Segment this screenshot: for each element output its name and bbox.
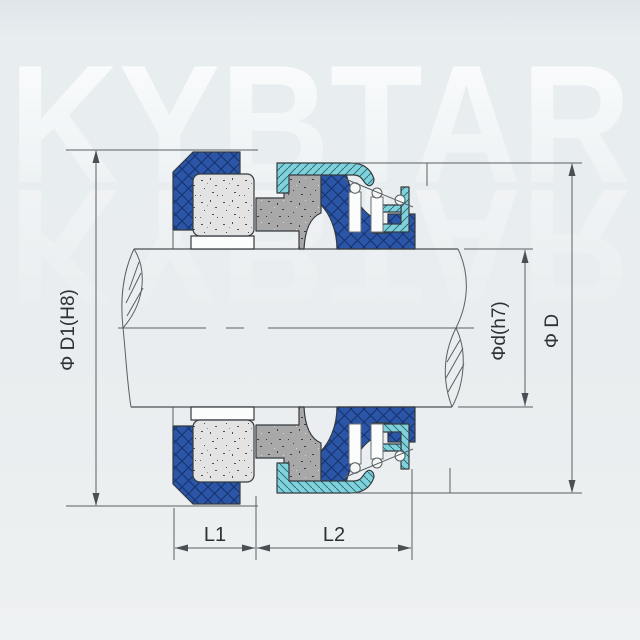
stationary-seat-ring xyxy=(193,174,254,236)
seal-assembly-bottom xyxy=(173,407,415,504)
seal-technical-drawing: KYBTAR KYBTAR xyxy=(0,0,640,640)
label-l1: L1 xyxy=(204,524,226,546)
seal-drawing-page: KYBTAR KYBTAR xyxy=(0,0,640,640)
label-d-outer: Φ D xyxy=(542,314,563,348)
label-l2: L2 xyxy=(323,524,345,546)
spring-cylinder xyxy=(371,197,383,232)
seat-spacer xyxy=(191,236,254,249)
label-d1: Φ D1(H8) xyxy=(58,289,79,371)
label-d-shaft: Φd(h7) xyxy=(489,301,510,361)
spring-cylinder xyxy=(349,192,361,232)
